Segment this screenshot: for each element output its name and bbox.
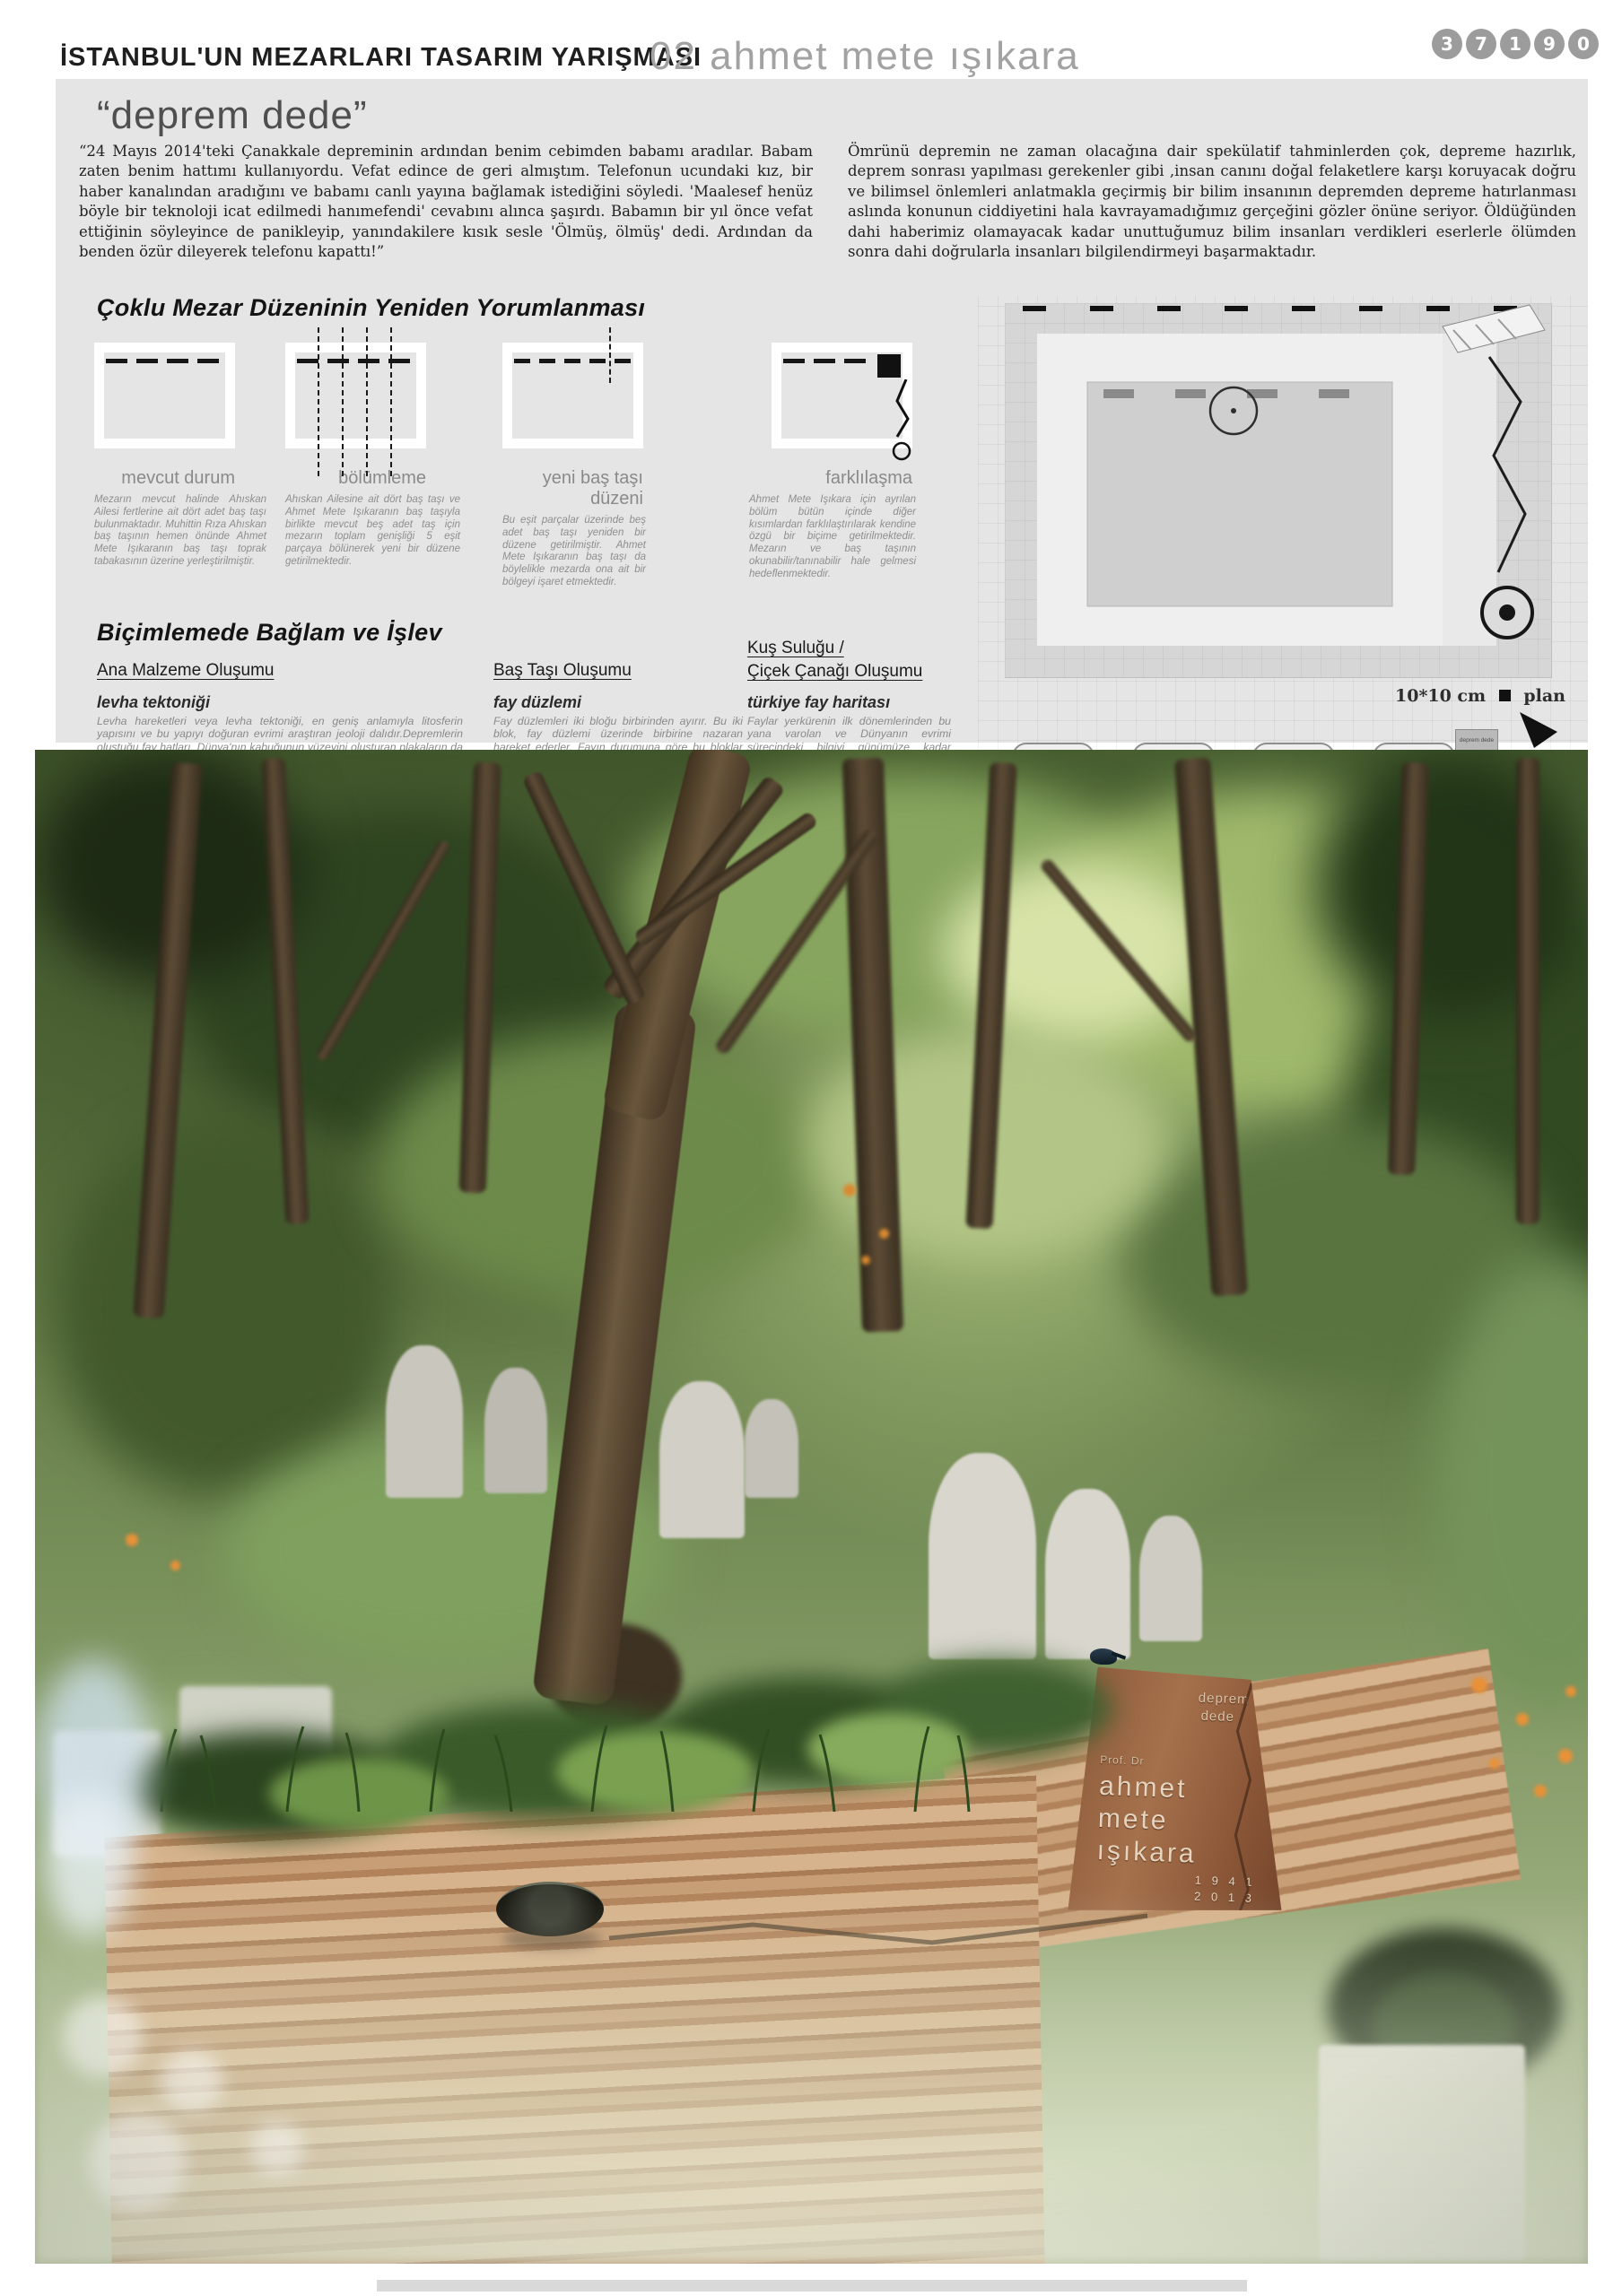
headstone	[659, 1381, 745, 1538]
bokeh	[161, 2050, 223, 2113]
step-text: Ahmet Mete Işıkara için ayrılan bölüm bü…	[749, 494, 916, 581]
headstone	[386, 1345, 463, 1498]
foliage-blob	[1318, 750, 1588, 1019]
plan-swatch	[1499, 690, 1511, 701]
code-digit: 0	[1568, 29, 1599, 59]
division-line	[342, 327, 344, 476]
plan-thumb-diagram	[502, 343, 643, 448]
column-header-suluk-1: Kuş Suluğu /	[747, 639, 844, 658]
code-digit: 1	[1500, 29, 1530, 59]
section-title-reinterpretation: Çoklu Mezar Düzeninin Yeniden Yorumlanma…	[97, 294, 645, 322]
flower	[1558, 1749, 1573, 1763]
render-photo: deprem dede Prof. Dr ahmet mete ışıkara …	[35, 750, 1588, 2264]
flower	[1471, 1677, 1487, 1693]
flower	[126, 1534, 138, 1546]
headstone-mark	[783, 359, 805, 363]
headstone-mark	[844, 359, 866, 363]
headstone-mark	[327, 359, 349, 363]
subitem-title: levha tektoniği	[97, 693, 210, 712]
subitem-title: türkiye fay haritası	[747, 693, 890, 712]
division-line	[609, 327, 611, 383]
step-label: mevcut durum	[94, 468, 235, 489]
grass-blades	[135, 1704, 996, 1812]
step-text: Bu eşit parçalar üzerinde beş adet baş t…	[502, 515, 646, 589]
plan-caption: 10*10 cm plan	[1256, 686, 1565, 706]
column-header-bastasi: Baş Taşı Oluşumu	[493, 661, 632, 681]
foliage-blob	[54, 1121, 395, 1498]
headstone-mark	[615, 359, 631, 363]
step-farklilasma: farklılaşma Ahmet Mete Işıkara için ayrı…	[749, 343, 916, 581]
headstone	[1139, 1516, 1202, 1641]
step-label: yeni baş taşı düzeni	[502, 468, 643, 509]
headstone	[484, 1368, 547, 1493]
quote-left: “24 Mayıs 2014'teki Çanakkale depreminin…	[79, 142, 813, 263]
entry-code: 3 7 1 9 0	[1432, 29, 1599, 59]
step-text: Mezarın mevcut halinde Ahıskan Ailesi fe…	[94, 494, 266, 569]
headstone-mark	[589, 359, 606, 363]
headstone-mark	[564, 359, 580, 363]
isikara-stone-mark	[877, 354, 901, 378]
headstone	[745, 1399, 798, 1498]
flower	[879, 1229, 889, 1239]
code-digit: 3	[1432, 29, 1462, 59]
headstone-mark	[297, 359, 318, 363]
plan-label: plan	[1523, 686, 1565, 706]
headstone-mark	[197, 359, 219, 363]
division-line	[366, 327, 368, 476]
scale-label: 10*10 cm	[1395, 686, 1486, 706]
headstone-mark	[814, 359, 835, 363]
headstone-mark	[106, 359, 127, 363]
headstone-mark	[539, 359, 555, 363]
foreground-haze	[35, 1887, 1588, 2264]
step-yeni-duzen: yeni baş taşı düzeni Bu eşit parçalar üz…	[502, 343, 646, 589]
plan-thumb-diagram	[772, 343, 912, 448]
headstone	[929, 1453, 1036, 1659]
step-bolumleme: bölümleme Ahıskan Ailesine ait dört baş …	[285, 343, 460, 569]
plan-thumb-diagram	[94, 343, 235, 448]
headstone-mark	[514, 359, 530, 363]
division-line	[390, 327, 392, 476]
bokeh	[89, 2113, 187, 2212]
column-header-malzeme: Ana Malzeme Oluşumu	[97, 661, 274, 681]
quote-title: “deprem dede”	[97, 93, 368, 138]
code-digit: 9	[1534, 29, 1565, 59]
column-header-suluk-2: Çiçek Çanağı Oluşumu	[747, 662, 922, 682]
step-text: Ahıskan Ailesine ait dört baş taşı ve Ah…	[285, 494, 460, 569]
flower	[861, 1256, 870, 1265]
grave-plan-drawing	[1005, 303, 1552, 678]
flower	[1534, 1785, 1547, 1797]
water-path-mark	[890, 379, 917, 469]
quote-right: Ömrünü depremin ne zaman olacağına dair …	[848, 142, 1576, 263]
division-line	[318, 327, 319, 476]
plan-thumb-diagram	[285, 343, 426, 448]
code-digit: 7	[1466, 29, 1496, 59]
bottom-bar	[377, 2280, 1247, 2292]
stone-text: deprem dede	[1456, 737, 1497, 744]
competition-title: İSTANBUL'UN MEZARLARI TASARIM YARIŞMASI	[60, 43, 702, 72]
flower	[1516, 1713, 1529, 1726]
bokeh	[250, 2122, 304, 2176]
flower	[170, 1561, 180, 1570]
headstone	[1045, 1489, 1130, 1659]
header: İSTANBUL'UN MEZARLARI TASARIM YARIŞMASI	[60, 43, 702, 73]
headstone-mark	[167, 359, 188, 363]
section-title-form: Biçimlemede Bağlam ve İşlev	[97, 619, 442, 647]
entry-title: 02 ahmet mete ışıkara	[650, 34, 1080, 79]
flower	[1489, 1758, 1500, 1769]
step-label: bölümleme	[285, 468, 426, 489]
step-mevcut-durum: mevcut durum Mezarın mevcut halinde Ahıs…	[94, 343, 266, 569]
bokeh	[62, 1996, 143, 2077]
competition-board: İSTANBUL'UN MEZARLARI TASARIM YARIŞMASI …	[0, 0, 1622, 2296]
headstone-mark	[136, 359, 158, 363]
flower	[843, 1184, 856, 1196]
plan-arrow-icon	[1514, 707, 1563, 752]
headstone-mark	[358, 359, 379, 363]
tree-trunk	[1516, 758, 1539, 1224]
flower	[1565, 1686, 1576, 1697]
subitem-title: fay düzlemi	[493, 693, 581, 712]
step-label: farklılaşma	[749, 468, 912, 489]
